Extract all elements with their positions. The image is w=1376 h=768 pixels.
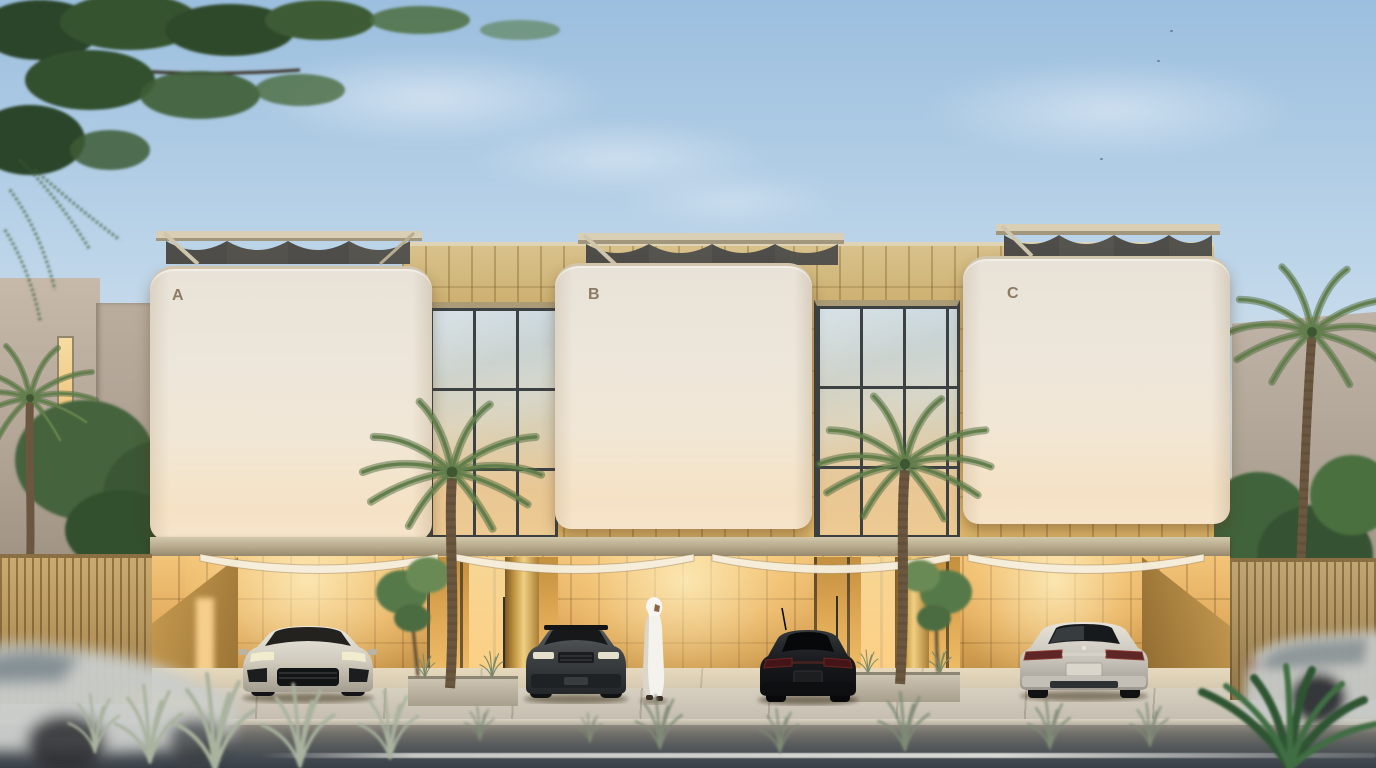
architectural-render-scene: A B C (0, 0, 1376, 768)
overhanging-branch (0, 0, 620, 360)
corner-fan-plant (1150, 656, 1376, 768)
